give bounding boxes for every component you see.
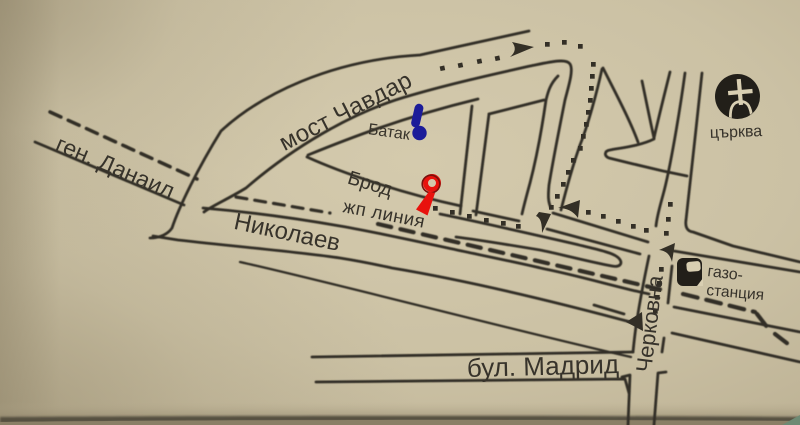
svg-text:църква: църква [710,123,763,142]
svg-text:бул. Мадрид: бул. Мадрид [467,349,620,383]
